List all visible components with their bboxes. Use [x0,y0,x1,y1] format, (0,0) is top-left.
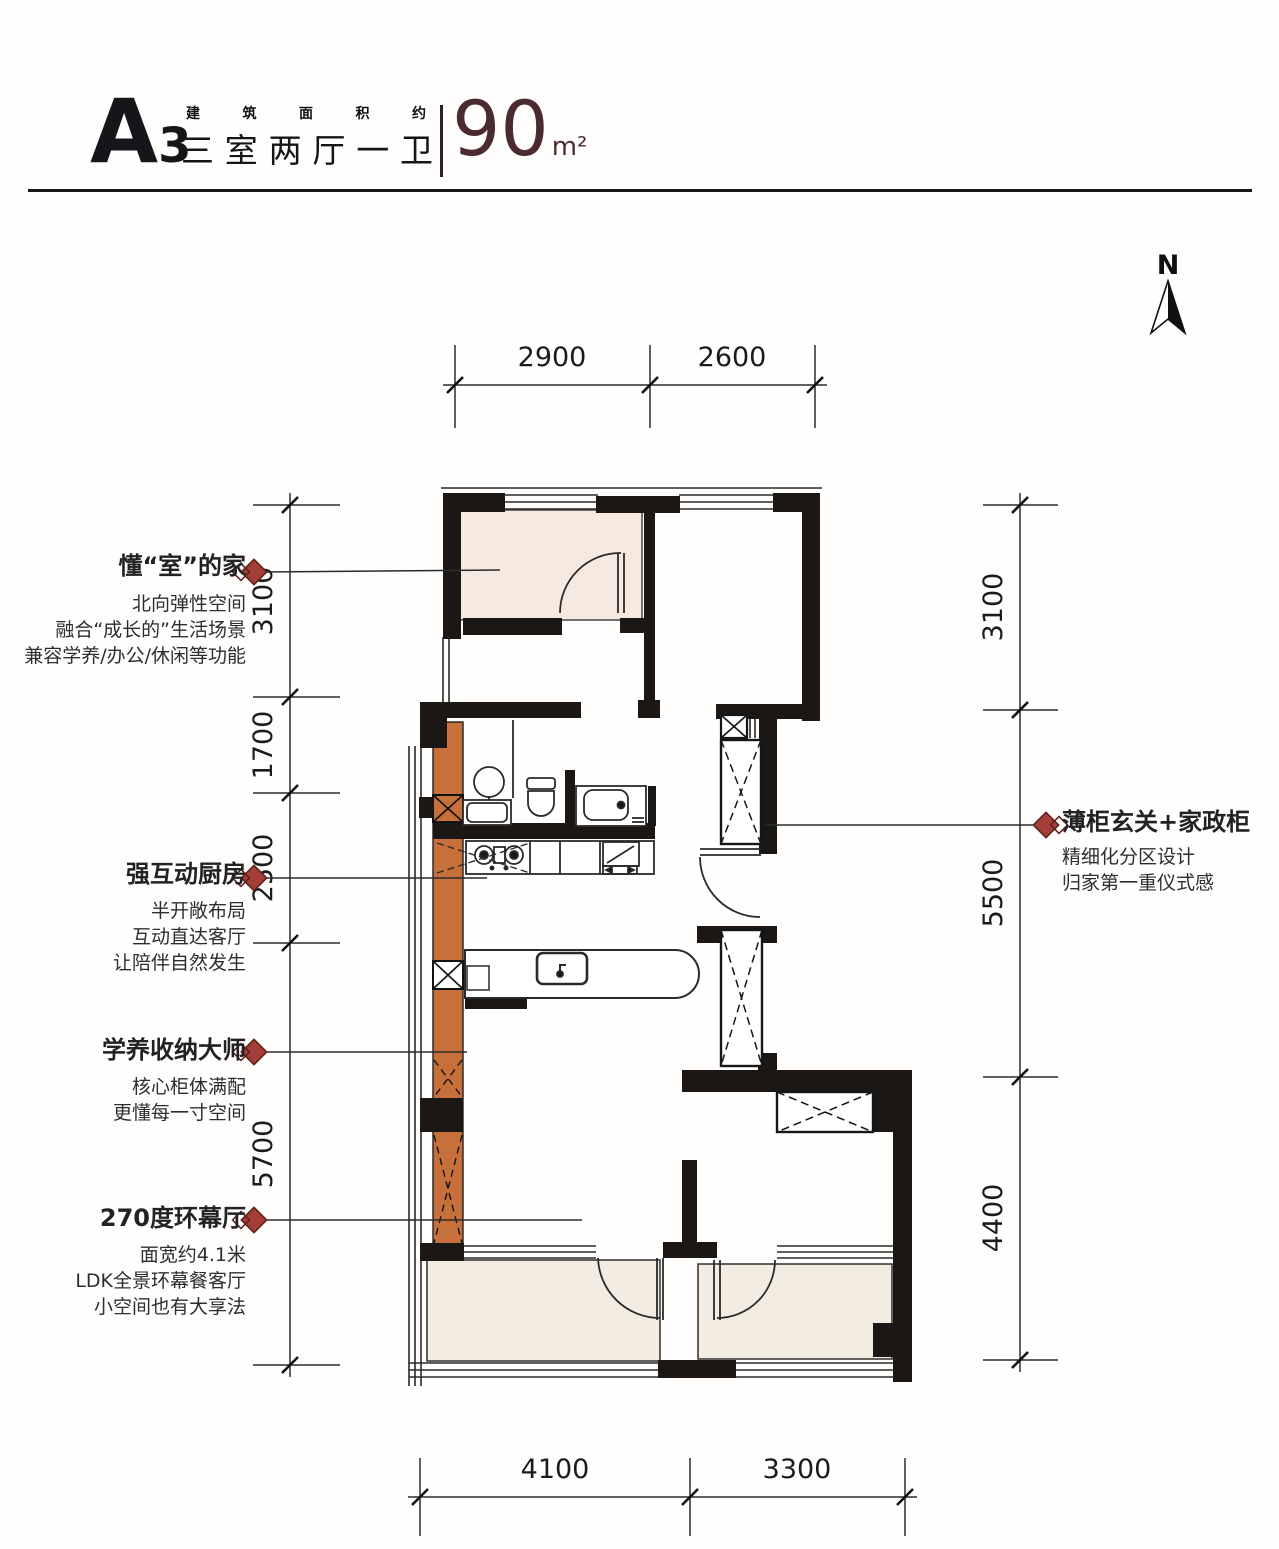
kitchen-island [465,950,699,998]
north-arrow: N [1151,250,1185,333]
balcony-right-floor [698,1264,892,1359]
fixtures [437,720,699,998]
toilet-icon [527,778,555,816]
island-faucet-icon [557,971,563,977]
dim-top-1: 2900 [518,342,587,373]
annotation-living: 270度环幕厅 面宽约4.1米 LDK全景环幕餐客厅 小空间也有大享法 [0,1204,246,1320]
dim-left-4: 5700 [248,1120,279,1189]
cabinet-strip [433,722,463,1245]
annotation-title: 学养收纳大师 [0,1036,246,1064]
annotation-line: 核心柜体满配 [0,1074,246,1100]
entry-door [700,849,761,917]
dim-bottom-1: 4100 [521,1454,590,1485]
annotation-line: 更懂每一寸空间 [0,1100,246,1126]
walls [419,493,912,1382]
annotation-title: 懂“室”的家 [0,552,246,580]
dim-right-3: 4400 [978,1184,1009,1253]
annotation-line: 归家第一重仪式感 [1062,870,1279,896]
dim-left-2: 1700 [248,711,279,780]
dim-bottom-2: 3300 [763,1454,832,1485]
annotation-title: 强互动厨房 [0,860,246,888]
annotation-line: 融合“成长的”生活场景 [0,617,246,643]
balcony-left-floor [427,1260,660,1361]
annotation-storage: 学养收纳大师 核心柜体满配 更懂每一寸空间 [0,1036,246,1126]
annotation-kitchen: 强互动厨房 半开敞布局 互动直达客厅 让陪伴自然发生 [0,860,246,976]
mirror-icon [474,767,504,797]
annotation-line: LDK全景环幕餐客厅 [0,1268,246,1294]
dim-right-1: 3100 [978,573,1009,642]
north-label: N [1157,250,1180,281]
annotation-line: 面宽约4.1米 [0,1242,246,1268]
annotation-flex-room: 懂“室”的家 北向弹性空间 融合“成长的”生活场景 兼容学养/办公/休闲等功能 [0,552,246,669]
vanity-sink-icon [576,786,646,826]
annotation-line: 小空间也有大享法 [0,1294,246,1320]
annotation-entry: 薄柜玄关+家政柜 精细化分区设计 归家第一重仪式感 [1062,808,1279,896]
wardrobes [721,715,873,1132]
dim-right-2: 5500 [978,859,1009,928]
annotation-line: 北向弹性空间 [0,591,246,617]
annotation-title: 270度环幕厅 [0,1204,246,1232]
annotation-title: 薄柜玄关+家政柜 [1062,808,1279,836]
annotation-line: 互动直达客厅 [0,924,246,950]
dim-top-2: 2600 [698,342,767,373]
annotation-line: 精细化分区设计 [1062,844,1279,870]
annotation-line: 让陪伴自然发生 [0,950,246,976]
room-fills [427,510,892,1361]
floorplan-page: A 3 建 筑 面 积 约 三 室 两 厅 一 卫 90 m² [0,0,1279,1549]
annotation-line: 半开敞布局 [0,898,246,924]
flex-room-floor [460,510,642,620]
annotation-line: 兼容学养/办公/休闲等功能 [0,643,246,669]
